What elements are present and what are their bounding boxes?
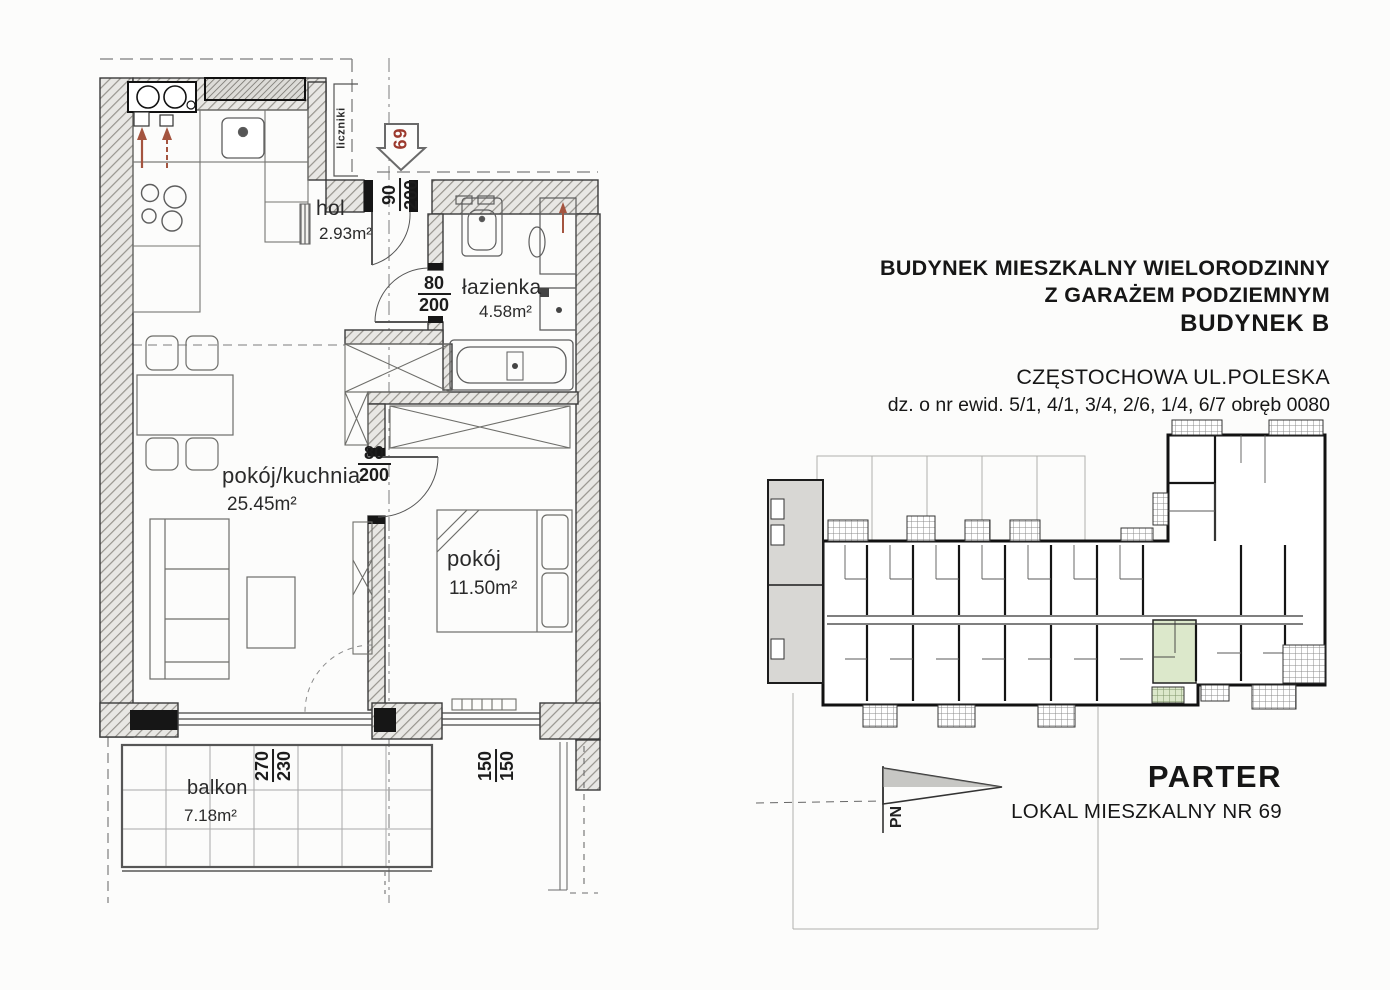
room-label-lazienka: łazienka [462, 276, 541, 300]
building-title-line2: Z GARAŻEM PODZIEMNYM [875, 282, 1330, 309]
coffee-table [247, 577, 295, 648]
building-overview-plan: PN [755, 413, 1390, 943]
room-area-lazienka: 4.58m² [479, 302, 532, 322]
living-window [178, 708, 372, 730]
apartment-plan-drawing [95, 55, 625, 935]
stove-burners [142, 185, 187, 232]
room-label-balkon: balkon [187, 777, 248, 800]
wall-sink-unit [128, 82, 196, 112]
building-title-line3: BUDYNEK B [875, 309, 1330, 339]
dining-table [137, 336, 233, 470]
title-block: BUDYNEK MIESZKALNY WIELORODZINNY Z GARAŻ… [875, 255, 1330, 417]
utility-riser-arrows [134, 112, 173, 168]
north-label: PN [888, 806, 905, 828]
room-label-pokoj: pokój [447, 546, 501, 572]
unit-label: LOKAL MIESZKALNY NR 69 [1000, 800, 1282, 824]
bedroom-window-dimension: 150 150 [467, 731, 525, 801]
floor-label: PARTER [1000, 760, 1282, 794]
footer-block: PARTER LOKAL MIESZKALNY NR 69 [1000, 760, 1282, 824]
floor-plan-sheet: { "document": { "background": "#fcfcfb" … [0, 0, 1390, 990]
parcel-numbers: dz. o nr ewid. 5/1, 4/1, 3/4, 2/6, 1/4, … [875, 393, 1330, 417]
room-area-balkon: 7.18m² [184, 806, 237, 826]
sofa [150, 519, 229, 679]
bathroom-door-dimension: 80 200 [419, 274, 449, 314]
unit-number-marker: 69 [384, 122, 418, 154]
bathtub [450, 340, 573, 390]
room-area-pokoj-kuchnia: 25.45m² [227, 494, 297, 516]
room-label-hol: hol [316, 197, 345, 221]
room-area-pokoj: 11.50m² [449, 578, 517, 600]
bedroom-door-dimension: 80 200 [359, 444, 389, 484]
entrance-door-dimension: 90 200 [374, 166, 426, 224]
radiator [452, 699, 516, 710]
room-label-pokoj-kuchnia: pokój/kuchnia [222, 463, 360, 489]
meters-label: liczniki [320, 94, 364, 162]
balcony-door-arc [305, 645, 372, 712]
living-window-dimension: 270 230 [244, 731, 302, 801]
kitchen-sink [222, 118, 264, 158]
washing-machine [540, 288, 576, 330]
bedroom-window [442, 708, 540, 730]
building-title-line1: BUDYNEK MIESZKALNY WIELORODZINNY [875, 255, 1330, 282]
room-area-hol: 2.93m² [319, 224, 372, 244]
building-address: CZĘSTOCHOWA UL.POLESKA [875, 364, 1330, 391]
